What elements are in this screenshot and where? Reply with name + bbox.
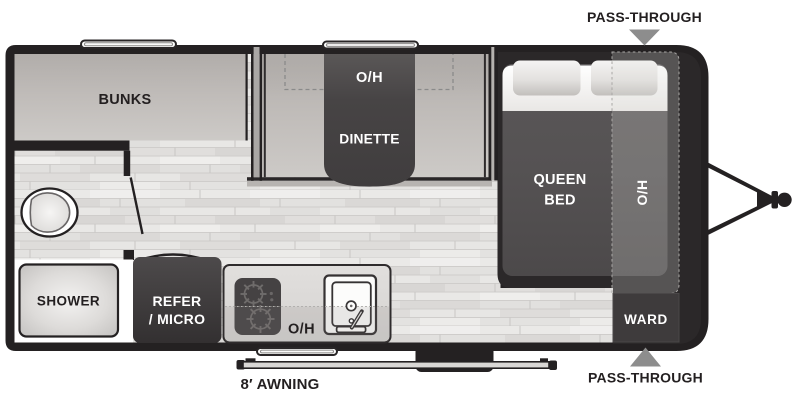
svg-text:PASS-THROUGH: PASS-THROUGH xyxy=(587,9,702,25)
svg-text:/ MICRO: / MICRO xyxy=(149,311,206,327)
svg-text:O/H: O/H xyxy=(288,322,315,338)
svg-text:O/H: O/H xyxy=(634,179,650,205)
svg-text:DINETTE: DINETTE xyxy=(339,132,399,147)
svg-text:QUEEN: QUEEN xyxy=(533,172,586,188)
svg-text:REFER: REFER xyxy=(153,293,202,309)
svg-text:O/H: O/H xyxy=(356,70,383,86)
svg-text:SHOWER: SHOWER xyxy=(37,294,100,309)
svg-text:BED: BED xyxy=(544,193,576,209)
svg-text:WARD: WARD xyxy=(624,312,668,327)
svg-text:8′ AWNING: 8′ AWNING xyxy=(240,376,319,393)
svg-text:PASS-THROUGH: PASS-THROUGH xyxy=(588,370,703,386)
svg-text:BUNKS: BUNKS xyxy=(98,92,151,108)
